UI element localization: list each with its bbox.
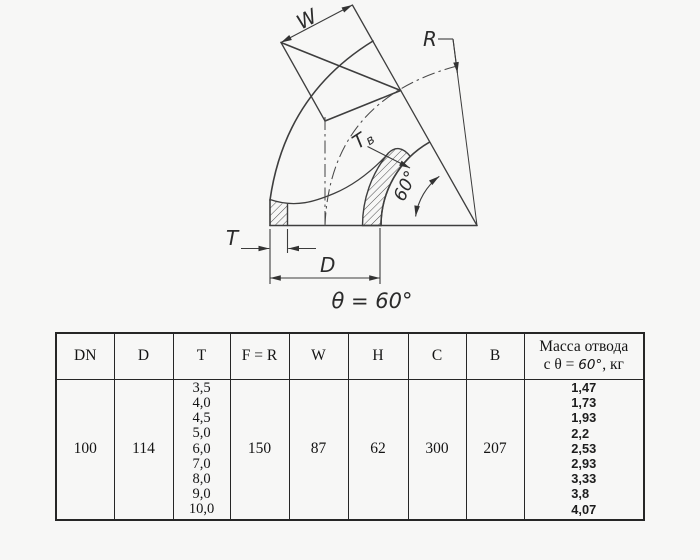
- mass-value: 1,93: [571, 410, 596, 425]
- r-dimension-label: R: [423, 27, 437, 51]
- inner-thickness-label: Tв: [349, 125, 378, 156]
- t-value: 4,5: [174, 411, 230, 426]
- inner-face-line: [325, 91, 401, 122]
- header-row: DN D T F = R W H C B Масса отвода с θ = …: [56, 333, 644, 379]
- t-value: 6,0: [174, 442, 230, 457]
- t-value: 4,0: [174, 396, 230, 411]
- theta-equation-label: θ = 60°: [331, 289, 412, 313]
- t-value: 9,0: [174, 487, 230, 502]
- header-cell-fr: F = R: [230, 333, 289, 379]
- t-value: 8,0: [174, 472, 230, 487]
- end-face-line: [281, 43, 401, 91]
- header-cell-b: B: [466, 333, 524, 379]
- data-row: 100 114 3,5 4,0 4,5 5,0 6,0 7,0 8,0 9,0 …: [56, 379, 644, 520]
- header-cell-mass: Масса отвода с θ = 60°, кг: [524, 333, 644, 379]
- wall-thickness-label: T: [226, 226, 240, 250]
- mass-value: 2,2: [571, 426, 596, 441]
- cell-dn: 100: [56, 379, 114, 520]
- t-value: 10,0: [174, 502, 230, 517]
- bend-centerline-arc: [325, 66, 457, 226]
- elbow-drawing: W R Tв 60° T D θ = 60°: [0, 0, 700, 330]
- header-cell-dn: DN: [56, 333, 114, 379]
- angle-dimension-arc: [416, 176, 440, 216]
- cell-t-values: 3,5 4,0 4,5 5,0 6,0 7,0 8,0 9,0 10,0: [173, 379, 230, 520]
- mass-value: 2,53: [571, 441, 596, 456]
- cell-c: 300: [408, 379, 466, 520]
- wall-section-hatch: [270, 200, 288, 225]
- mass-value: 1,47: [571, 380, 596, 395]
- mass-value: 1,73: [571, 395, 596, 410]
- r-arrow-segment: [453, 39, 457, 73]
- header-cell-t: T: [173, 333, 230, 379]
- cell-fr: 150: [230, 379, 289, 520]
- header-cell-h: H: [348, 333, 408, 379]
- cell-mass-values: 1,47 1,73 1,93 2,2 2,53 2,93 3,33 3,8 4,…: [524, 379, 644, 520]
- t-value: 3,5: [174, 381, 230, 396]
- mass-value: 4,07: [571, 502, 596, 517]
- t-value: 7,0: [174, 457, 230, 472]
- header-cell-w: W: [289, 333, 348, 379]
- diameter-label: D: [320, 253, 335, 277]
- cell-b: 207: [466, 379, 524, 520]
- outer-arc: [270, 41, 373, 200]
- cell-w: 87: [289, 379, 348, 520]
- header-cell-d: D: [114, 333, 173, 379]
- w-dimension-label: W: [292, 3, 322, 34]
- mass-header-line2: с θ = 60°, кг: [525, 356, 644, 375]
- mass-value: 2,93: [571, 456, 596, 471]
- centerlines: [325, 66, 457, 226]
- mass-value: 3,8: [571, 486, 596, 501]
- header-cell-c: C: [408, 333, 466, 379]
- cell-d: 114: [114, 379, 173, 520]
- cell-h: 62: [348, 379, 408, 520]
- mass-header-line1: Масса отвода: [525, 338, 644, 356]
- catalog-page: W R Tв 60° T D θ = 60° DN D T F = R W H …: [0, 0, 700, 560]
- t-value: 5,0: [174, 426, 230, 441]
- dimensions-table: DN D T F = R W H C B Масса отвода с θ = …: [55, 332, 645, 521]
- mass-value: 3,33: [571, 471, 596, 486]
